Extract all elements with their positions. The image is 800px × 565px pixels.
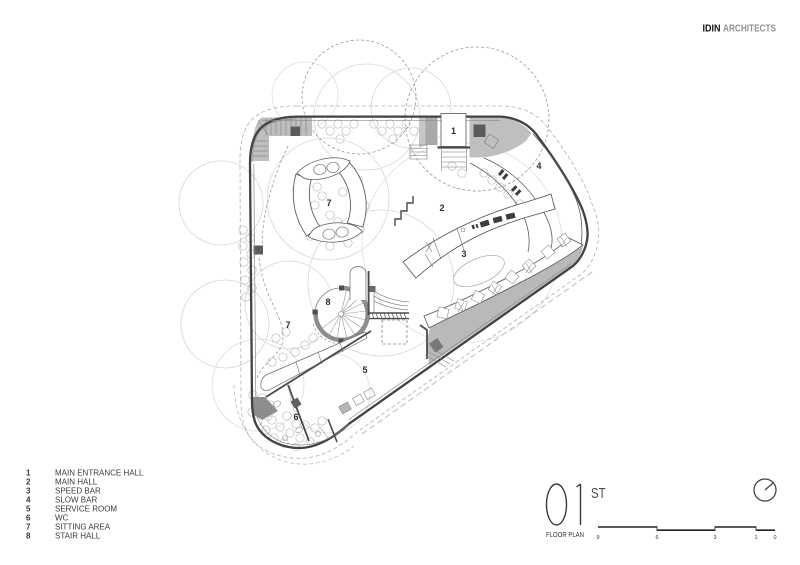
svg-text:6: 6 xyxy=(655,535,658,541)
svg-text:4: 4 xyxy=(536,161,541,171)
svg-text:SPEED BAR: SPEED BAR xyxy=(55,487,101,496)
svg-text:SLOW BAR: SLOW BAR xyxy=(55,496,97,505)
svg-text:3: 3 xyxy=(26,487,31,496)
svg-text:FLOOR PLAN: FLOOR PLAN xyxy=(546,532,584,539)
svg-text:MAIN HALL: MAIN HALL xyxy=(55,478,98,487)
svg-text:2: 2 xyxy=(439,203,444,213)
svg-text:2: 2 xyxy=(26,478,31,487)
svg-text:ST: ST xyxy=(591,485,606,502)
svg-text:8: 8 xyxy=(26,532,31,541)
svg-text:4: 4 xyxy=(26,496,31,505)
svg-text:3: 3 xyxy=(713,535,716,541)
svg-text:7: 7 xyxy=(26,523,31,532)
svg-text:5: 5 xyxy=(362,365,367,375)
svg-text:1: 1 xyxy=(26,469,31,478)
svg-text:0: 0 xyxy=(773,535,776,541)
svg-text:ARCHITECTS: ARCHITECTS xyxy=(723,23,776,35)
svg-text:7: 7 xyxy=(326,198,331,208)
svg-text:IDIN: IDIN xyxy=(703,23,721,35)
svg-text:3: 3 xyxy=(461,249,466,259)
svg-text:6: 6 xyxy=(26,514,31,523)
svg-text:1: 1 xyxy=(754,535,757,541)
svg-text:SITTING AREA: SITTING AREA xyxy=(55,523,111,532)
svg-text:5: 5 xyxy=(26,505,31,514)
svg-text:SERVICE ROOM: SERVICE ROOM xyxy=(55,505,117,514)
svg-text:7: 7 xyxy=(285,320,290,330)
svg-text:WC: WC xyxy=(55,514,69,523)
svg-text:1: 1 xyxy=(451,126,456,136)
svg-text:6: 6 xyxy=(293,412,298,422)
svg-text:STAIR HALL: STAIR HALL xyxy=(55,532,101,541)
svg-text:MAIN ENTRANCE HALL: MAIN ENTRANCE HALL xyxy=(55,469,144,478)
svg-text:8: 8 xyxy=(325,297,330,307)
svg-text:9: 9 xyxy=(596,535,599,541)
